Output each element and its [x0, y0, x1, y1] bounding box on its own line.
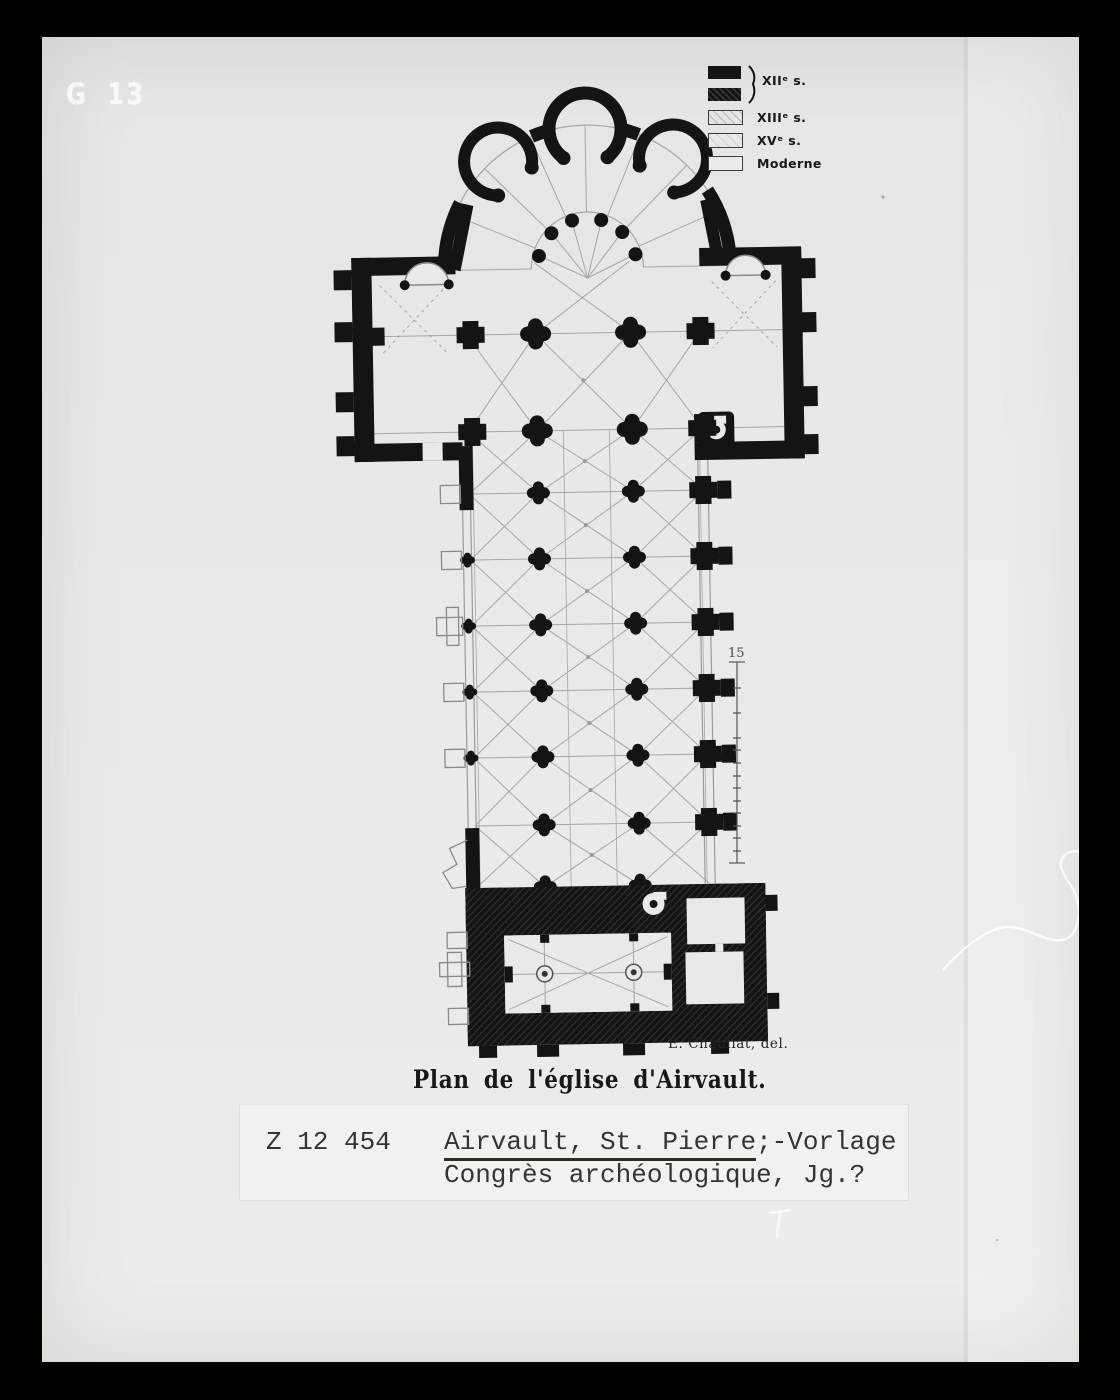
- transverse-arch-lines: [373, 329, 810, 827]
- vault-ribs: [369, 121, 810, 889]
- photograph: 15 G 13 XIIᵉ s. XIIIᵉ s. XVᵉ s. Modern: [42, 37, 1079, 1362]
- nave-ribs: [534, 261, 640, 887]
- speck: [882, 196, 885, 199]
- west-block: [438, 883, 780, 1059]
- legend-label-xiii: XIIIᵉ s.: [757, 110, 806, 125]
- legend-swatch-xv: [708, 133, 743, 148]
- tower-room-upper: [686, 897, 745, 944]
- catalog-title-line: Airvault, St. Pierre;-Vorlage: [444, 1127, 897, 1157]
- nave-piers: [527, 480, 652, 899]
- crossing-piers: [456, 315, 716, 448]
- legend-swatch-xiii: [708, 110, 743, 125]
- artist-credit: E. Chauliat, del.: [668, 1036, 788, 1052]
- speck: [996, 1239, 999, 1242]
- scanned-archive-photo: { "photo": { "corner_mark": "G 13" }, "l…: [0, 0, 1120, 1400]
- legend-label-xv: XVᵉ s.: [757, 133, 801, 148]
- plan-drawing: [330, 89, 829, 1060]
- apse-hemicycle-columns: [531, 212, 642, 263]
- t-scratch: [770, 1210, 790, 1237]
- catalog-inventory-number: Z 12 454: [266, 1127, 391, 1157]
- legend-brace: [746, 64, 760, 106]
- transept-left: [332, 203, 477, 462]
- radiating-chapel-left: [464, 127, 533, 196]
- legend-label-moderne: Moderne: [757, 156, 822, 171]
- catalog-title-suffix: ;-Vorlage: [756, 1127, 896, 1157]
- transept-chapel-dashed-ribs: [380, 279, 777, 356]
- catalog-subtitle-line: Congrès archéologique, Jg.?: [444, 1160, 865, 1190]
- legend-label-xii: XIIᵉ s.: [762, 73, 806, 88]
- catalog-title-underlined: Airvault, St. Pierre: [444, 1127, 756, 1161]
- legend-swatch-xii-hatched: [708, 88, 741, 101]
- west-buttress-outlines: [439, 932, 471, 1025]
- legend-swatch-moderne: [708, 156, 743, 171]
- scale-label: 15: [728, 646, 745, 661]
- right-aisle-wall: [689, 460, 738, 889]
- legend-swatch-xii-solid: [708, 66, 741, 79]
- corner-mark: G 13: [66, 77, 146, 111]
- radiating-chapel-right: [638, 124, 707, 193]
- light-band-right: [967, 37, 1079, 1362]
- plan-caption: Plan de l'église d'Airvault.: [413, 1065, 766, 1094]
- tower-room-lower: [685, 951, 744, 1004]
